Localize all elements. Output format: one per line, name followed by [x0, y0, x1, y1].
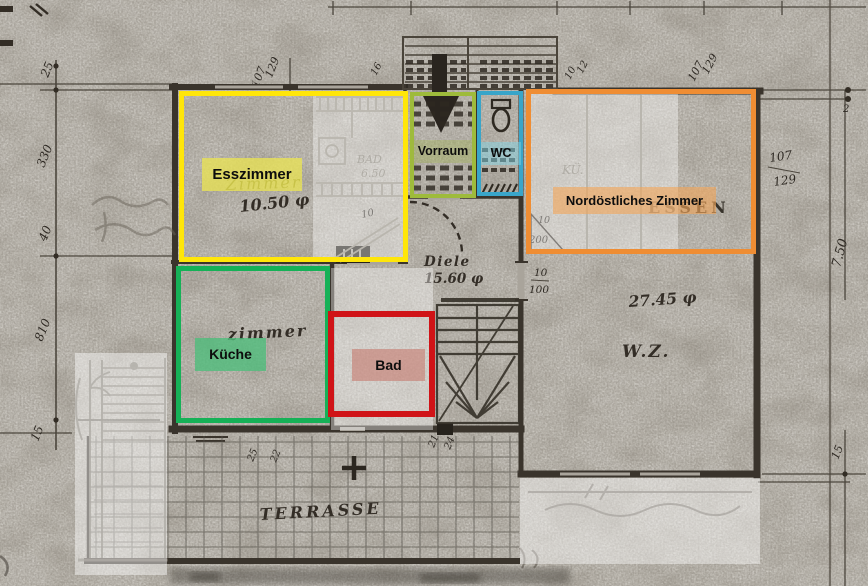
label-esszimmer-text: Esszimmer — [212, 167, 291, 183]
svg-text:2: 2 — [842, 104, 849, 115]
label-nordoestliches-zimmer: Nordöstliches Zimmer — [553, 187, 716, 214]
annotation-box-nordoestliches-zimmer — [526, 89, 756, 254]
label-nordoestliches-zimmer-text: Nordöstliches Zimmer — [566, 194, 703, 208]
svg-text:100: 100 — [529, 284, 549, 296]
label-bad: Bad — [352, 349, 425, 381]
text-wz: W.Z. — [622, 342, 670, 362]
label-vorraum: Vorraum — [412, 140, 474, 163]
wash-garden-area — [520, 478, 760, 564]
label-vorraum-text: Vorraum — [418, 145, 468, 158]
label-kueche: Küche — [195, 338, 266, 371]
label-esszimmer: Esszimmer — [202, 158, 302, 191]
label-wc: WC — [481, 142, 521, 165]
label-bad-text: Bad — [375, 358, 401, 373]
label-kueche-text: Küche — [209, 347, 252, 362]
label-wc-text: WC — [491, 147, 512, 160]
annotated-floorplan: 25 330 40 810 15 107 129 16 10 12 107 12… — [0, 0, 868, 586]
wash-stair-area — [75, 353, 167, 575]
svg-text:10: 10 — [534, 267, 548, 279]
